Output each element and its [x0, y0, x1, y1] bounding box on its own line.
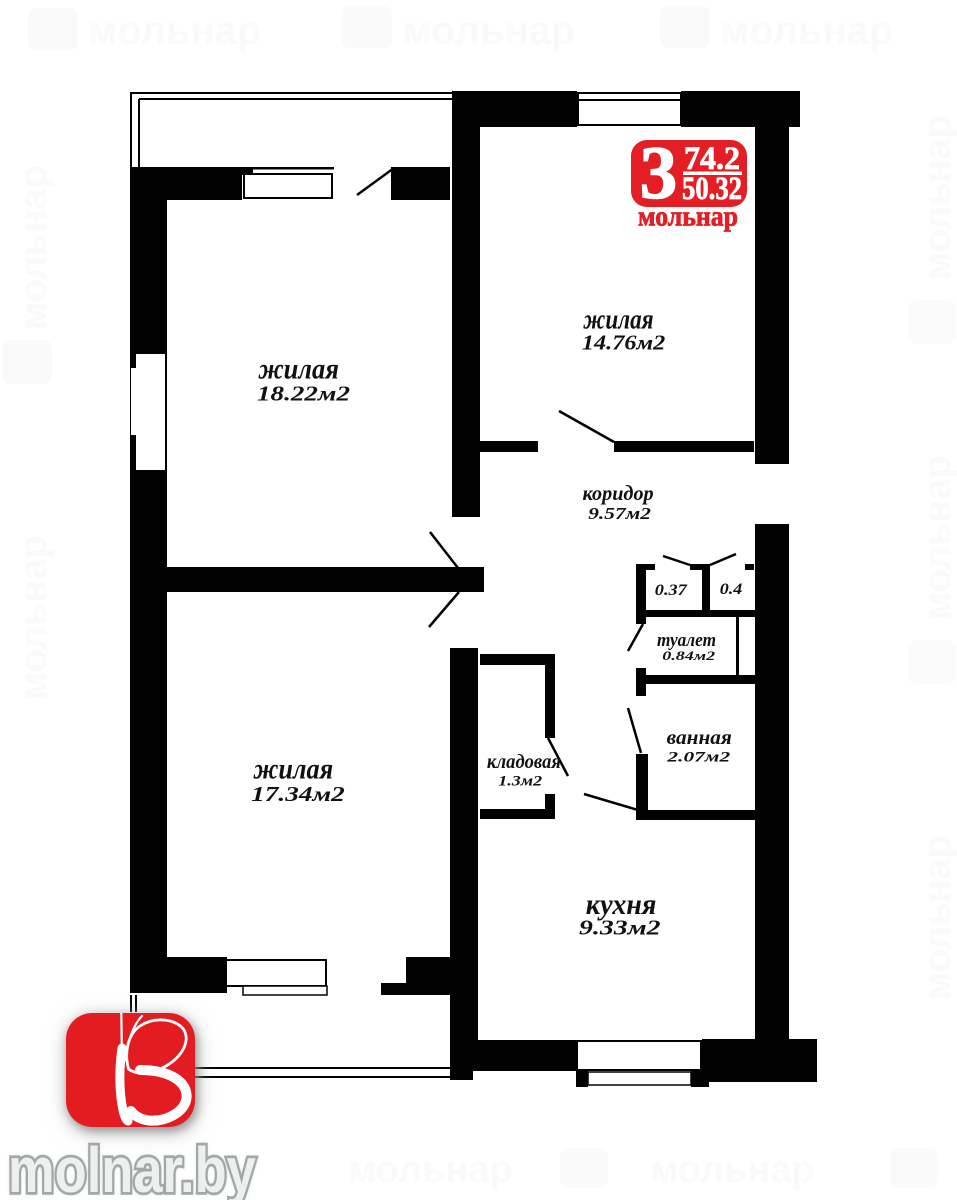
svg-text:мольнар: мольнар: [917, 835, 957, 1000]
svg-text:мольнар: мольнар: [650, 1149, 815, 1191]
svg-text:мольнар: мольнар: [348, 1149, 513, 1191]
svg-text:мольнар: мольнар: [13, 535, 55, 700]
svg-text:коридор: коридор: [583, 481, 654, 505]
svg-text:мольнар: мольнар: [638, 201, 738, 233]
svg-text:2.07м2: 2.07м2: [666, 750, 731, 766]
svg-text:мольнар: мольнар: [13, 165, 55, 330]
svg-text:18.22м2: 18.22м2: [257, 382, 351, 406]
svg-text:9.33м2: 9.33м2: [579, 916, 661, 940]
svg-text:мольнар: мольнар: [88, 9, 261, 53]
svg-text:ванная: ванная: [667, 727, 732, 749]
svg-text:0.37: 0.37: [655, 582, 688, 599]
svg-text:9.57м2: 9.57м2: [588, 504, 651, 523]
svg-text:мольнар: мольнар: [402, 9, 575, 53]
svg-text:14.76м2: 14.76м2: [582, 331, 666, 355]
svg-text:molnar.by: molnar.by: [8, 1135, 256, 1200]
svg-text:0.84м2: 0.84м2: [662, 648, 716, 663]
svg-text:17.34м2: 17.34м2: [251, 782, 345, 806]
svg-text:мольнар: мольнар: [720, 9, 893, 53]
svg-text:0.4: 0.4: [720, 581, 743, 598]
svg-text:1.3м2: 1.3м2: [498, 774, 542, 790]
svg-text:кладовая: кладовая: [487, 751, 561, 773]
svg-text:мольнар: мольнар: [917, 455, 957, 620]
svg-text:жилая: жилая: [253, 753, 334, 786]
svg-text:мольнар: мольнар: [917, 115, 957, 280]
